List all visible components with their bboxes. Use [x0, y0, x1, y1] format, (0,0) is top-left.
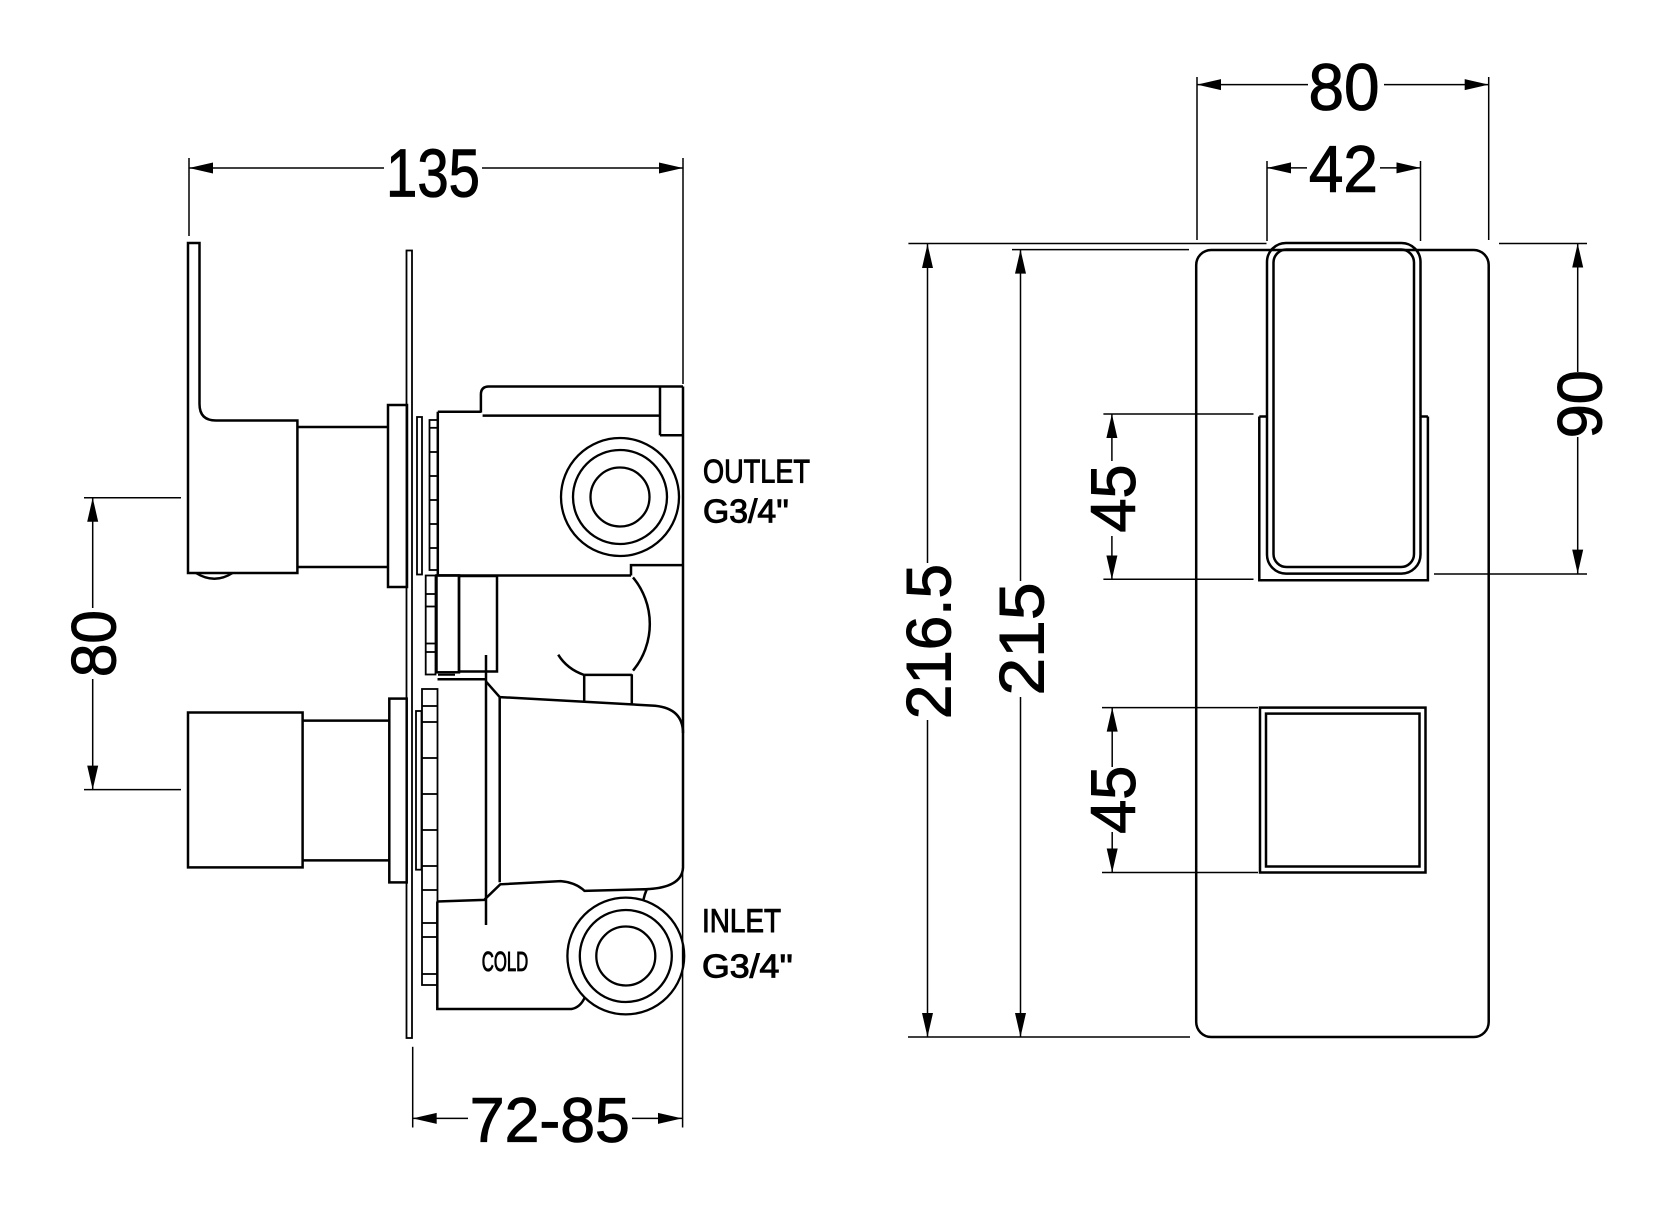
- svg-text:90: 90: [1545, 370, 1615, 438]
- svg-text:INLET: INLET: [702, 902, 781, 939]
- svg-text:216.5: 216.5: [895, 564, 965, 719]
- svg-text:45: 45: [1079, 465, 1149, 533]
- svg-text:COLD: COLD: [482, 946, 529, 977]
- svg-text:80: 80: [1308, 50, 1379, 124]
- svg-text:42: 42: [1309, 132, 1378, 206]
- svg-text:G3/4'': G3/4'': [703, 492, 789, 529]
- svg-text:72-85: 72-85: [470, 1086, 630, 1156]
- svg-text:215: 215: [988, 583, 1058, 696]
- svg-text:135: 135: [386, 135, 480, 211]
- svg-text:G3/4'': G3/4'': [702, 947, 793, 984]
- svg-text:OUTLET: OUTLET: [703, 453, 810, 490]
- svg-text:80: 80: [59, 610, 129, 677]
- svg-text:45: 45: [1079, 766, 1149, 834]
